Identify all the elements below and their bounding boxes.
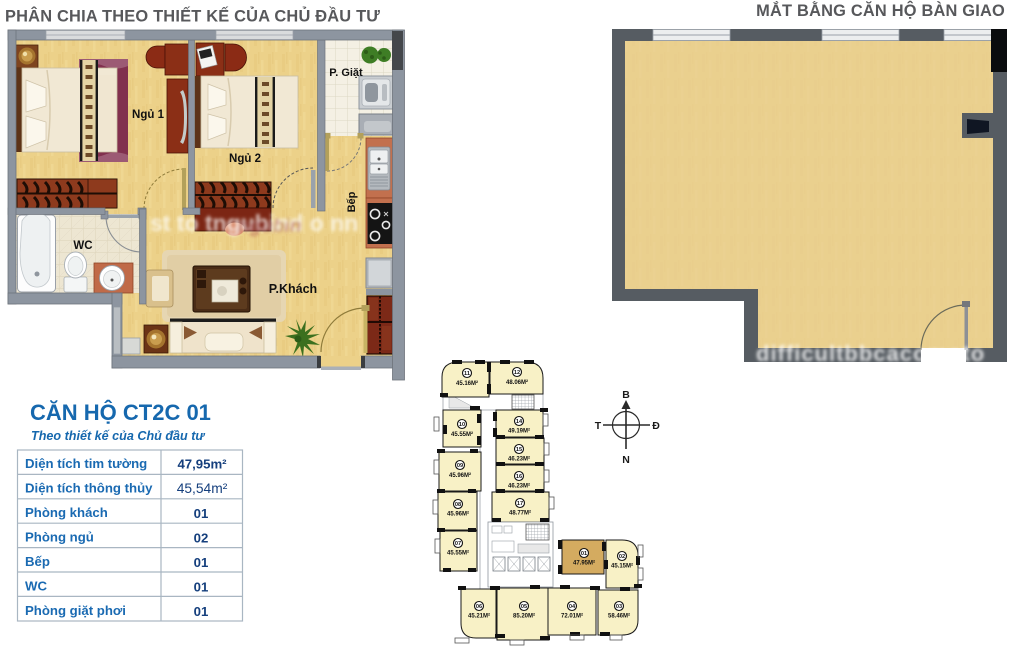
svg-text:Phòng giặt phơi: Phòng giặt phơi (25, 603, 126, 618)
svg-text:45.96M²: 45.96M² (449, 472, 471, 479)
svg-text:47.95M²: 47.95M² (573, 560, 595, 567)
svg-text:08: 08 (455, 502, 461, 508)
svg-text:49.19M²: 49.19M² (508, 428, 530, 435)
svg-text:PHÂN CHIA THEO THIẾT KẾ CỦA CH: PHÂN CHIA THEO THIẾT KẾ CỦA CHỦ ĐẦU TƯ (5, 7, 380, 26)
svg-text:N: N (622, 454, 630, 466)
svg-text:Ngủ 1: Ngủ 1 (132, 109, 165, 121)
svg-text:Phòng ngủ: Phòng ngủ (25, 530, 94, 545)
svg-text:15: 15 (516, 447, 522, 453)
svg-text:72.01M²: 72.01M² (561, 613, 583, 620)
svg-text:12: 12 (514, 370, 520, 376)
svg-text:48.77M²: 48.77M² (509, 510, 531, 517)
svg-text:07: 07 (455, 541, 461, 547)
svg-text:T: T (595, 420, 602, 432)
svg-text:WC: WC (73, 240, 92, 252)
svg-text:CĂN HỘ CT2C 01: CĂN HỘ CT2C 01 (30, 400, 211, 425)
svg-text:45.55M²: 45.55M² (447, 550, 469, 557)
svg-text:85.20M²: 85.20M² (513, 613, 535, 620)
svg-text:Phòng khách: Phòng khách (25, 505, 108, 520)
svg-text:Bếp: Bếp (25, 554, 50, 569)
svg-text:01: 01 (194, 506, 209, 521)
svg-text:45.96M²: 45.96M² (447, 511, 469, 518)
svg-text:01: 01 (581, 551, 587, 557)
svg-text:01: 01 (194, 604, 209, 619)
svg-text:ngubin: ngubin (238, 216, 301, 237)
svg-text:Đ: Đ (652, 420, 660, 432)
svg-text:01: 01 (194, 555, 209, 570)
svg-text:02: 02 (194, 531, 209, 546)
svg-text:P.Khách: P.Khách (269, 282, 317, 296)
svg-text:02: 02 (619, 554, 625, 560)
svg-text:B: B (622, 389, 630, 401)
svg-text:Diện tích tim tường: Diện tích tim tường (25, 456, 147, 471)
svg-text:46.23M²: 46.23M² (508, 483, 530, 490)
svg-text:04: 04 (569, 604, 576, 610)
svg-text:03: 03 (616, 604, 622, 610)
svg-text:MẮT BẰNG CĂN HỘ BÀN GIAO: MẮT BẰNG CĂN HỘ BÀN GIAO (756, 1, 1005, 20)
svg-text:Ngủ 2: Ngủ 2 (229, 153, 261, 165)
svg-text:Theo thiết kế của Chủ đầu tư: Theo thiết kế của Chủ đầu tư (31, 429, 205, 443)
svg-text:45.55M²: 45.55M² (451, 431, 473, 438)
svg-text:47,95m²: 47,95m² (177, 457, 227, 472)
svg-text:Diện tích thông thủy: Diện tích thông thủy (25, 481, 153, 496)
svg-text:45.21M²: 45.21M² (468, 613, 490, 620)
svg-text:46.23M²: 46.23M² (508, 456, 530, 463)
svg-text:05: 05 (521, 604, 527, 610)
svg-text:17: 17 (517, 501, 523, 507)
svg-text:10: 10 (459, 422, 465, 428)
svg-text:06: 06 (476, 604, 482, 610)
svg-text:45.16M²: 45.16M² (456, 380, 478, 387)
svg-text:09: 09 (457, 463, 463, 469)
svg-text:difficultbbcacomoto: difficultbbcacomoto (756, 341, 985, 366)
svg-text:16: 16 (516, 474, 522, 480)
svg-text:45.15M²: 45.15M² (611, 563, 633, 570)
svg-text:11: 11 (464, 371, 470, 377)
svg-text:58.46M²: 58.46M² (608, 613, 630, 620)
svg-text:14: 14 (516, 419, 523, 425)
svg-text:48.06M²: 48.06M² (506, 379, 528, 386)
svg-text:45,54m²: 45,54m² (177, 481, 228, 496)
svg-text:P. Giặt: P. Giặt (329, 67, 363, 79)
svg-text:WC: WC (25, 579, 47, 594)
svg-text:01: 01 (194, 580, 209, 595)
